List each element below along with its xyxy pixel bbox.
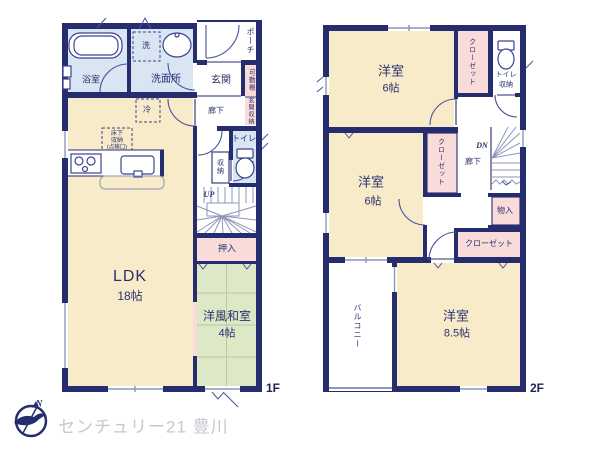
label-genkan: 玄関	[211, 76, 231, 86]
brand-watermark: センチュリー21 豊川	[58, 413, 229, 438]
label-bath: 浴室	[82, 76, 100, 85]
label-room-b-size: 6帖	[364, 197, 381, 208]
label-oshiire: 押入	[218, 245, 236, 254]
washbasin-icon	[163, 33, 191, 57]
label-stairs-up: UP	[204, 191, 215, 199]
label-hallway-2f: 廊下	[465, 158, 481, 166]
label-closet-a: クローゼット	[469, 38, 476, 86]
label-storage-1f: 収納	[217, 159, 224, 175]
room-c-85jo	[397, 263, 520, 386]
label-stairs-down: DN	[476, 142, 488, 150]
label-toilet-1f: トイレ	[232, 135, 256, 143]
label-genkan-storage: 玄関収納	[247, 97, 253, 125]
bathtub-icon	[69, 33, 122, 58]
label-toilet-storage-2f: 収納	[499, 82, 513, 89]
floorplan-page: 浴室 洗 洗面所 玄関 ポーチ 可動棚 玄関収納 廊下 トイレ 収納 UP 冷 …	[0, 0, 600, 450]
room-ldk	[66, 98, 193, 386]
label-room-a-size: 6帖	[382, 84, 399, 95]
label-hallway-1f: 廊下	[208, 107, 224, 115]
label-underfloor-1: 床下	[111, 131, 123, 137]
label-ldk-size: 18帖	[117, 290, 142, 302]
label-balcony: バルコニー	[353, 304, 361, 349]
label-room-c: 洋室	[443, 310, 469, 323]
stairs-2f	[492, 127, 520, 185]
label-room-c-size: 8.5帖	[444, 329, 470, 340]
floorplan-drawing	[0, 0, 600, 450]
label-underfloor-2: 収納	[111, 138, 123, 144]
toilet-icon-2f	[498, 41, 514, 69]
label-monoire: 物入	[497, 207, 513, 215]
label-closet-c: クローゼット	[465, 240, 513, 248]
compass-north-label: N	[36, 400, 43, 409]
toilet-icon-1f	[236, 149, 254, 178]
label-washitsu-size: 4帖	[218, 329, 235, 340]
label-floor-2f: 2F	[530, 382, 544, 394]
label-movable-shelf: 可動棚	[247, 69, 254, 92]
label-porch: ポーチ	[246, 28, 254, 55]
label-room-b: 洋室	[358, 176, 384, 189]
label-washitsu: 洋風和室	[203, 310, 251, 322]
label-floor-1f: 1F	[266, 382, 280, 394]
label-washroom: 洗面所	[151, 75, 181, 85]
bath-fixtures	[63, 66, 71, 89]
label-room-a: 洋室	[378, 65, 404, 78]
room-a-6jo	[329, 31, 454, 127]
label-closet-b: クローゼット	[438, 138, 445, 186]
label-washer: 洗	[142, 42, 150, 50]
label-toilet-2f: トイレ	[496, 72, 517, 79]
label-fridge: 冷	[143, 106, 151, 114]
label-ldk: LDK	[113, 269, 147, 285]
label-underfloor-3: (点検口)	[107, 145, 127, 151]
